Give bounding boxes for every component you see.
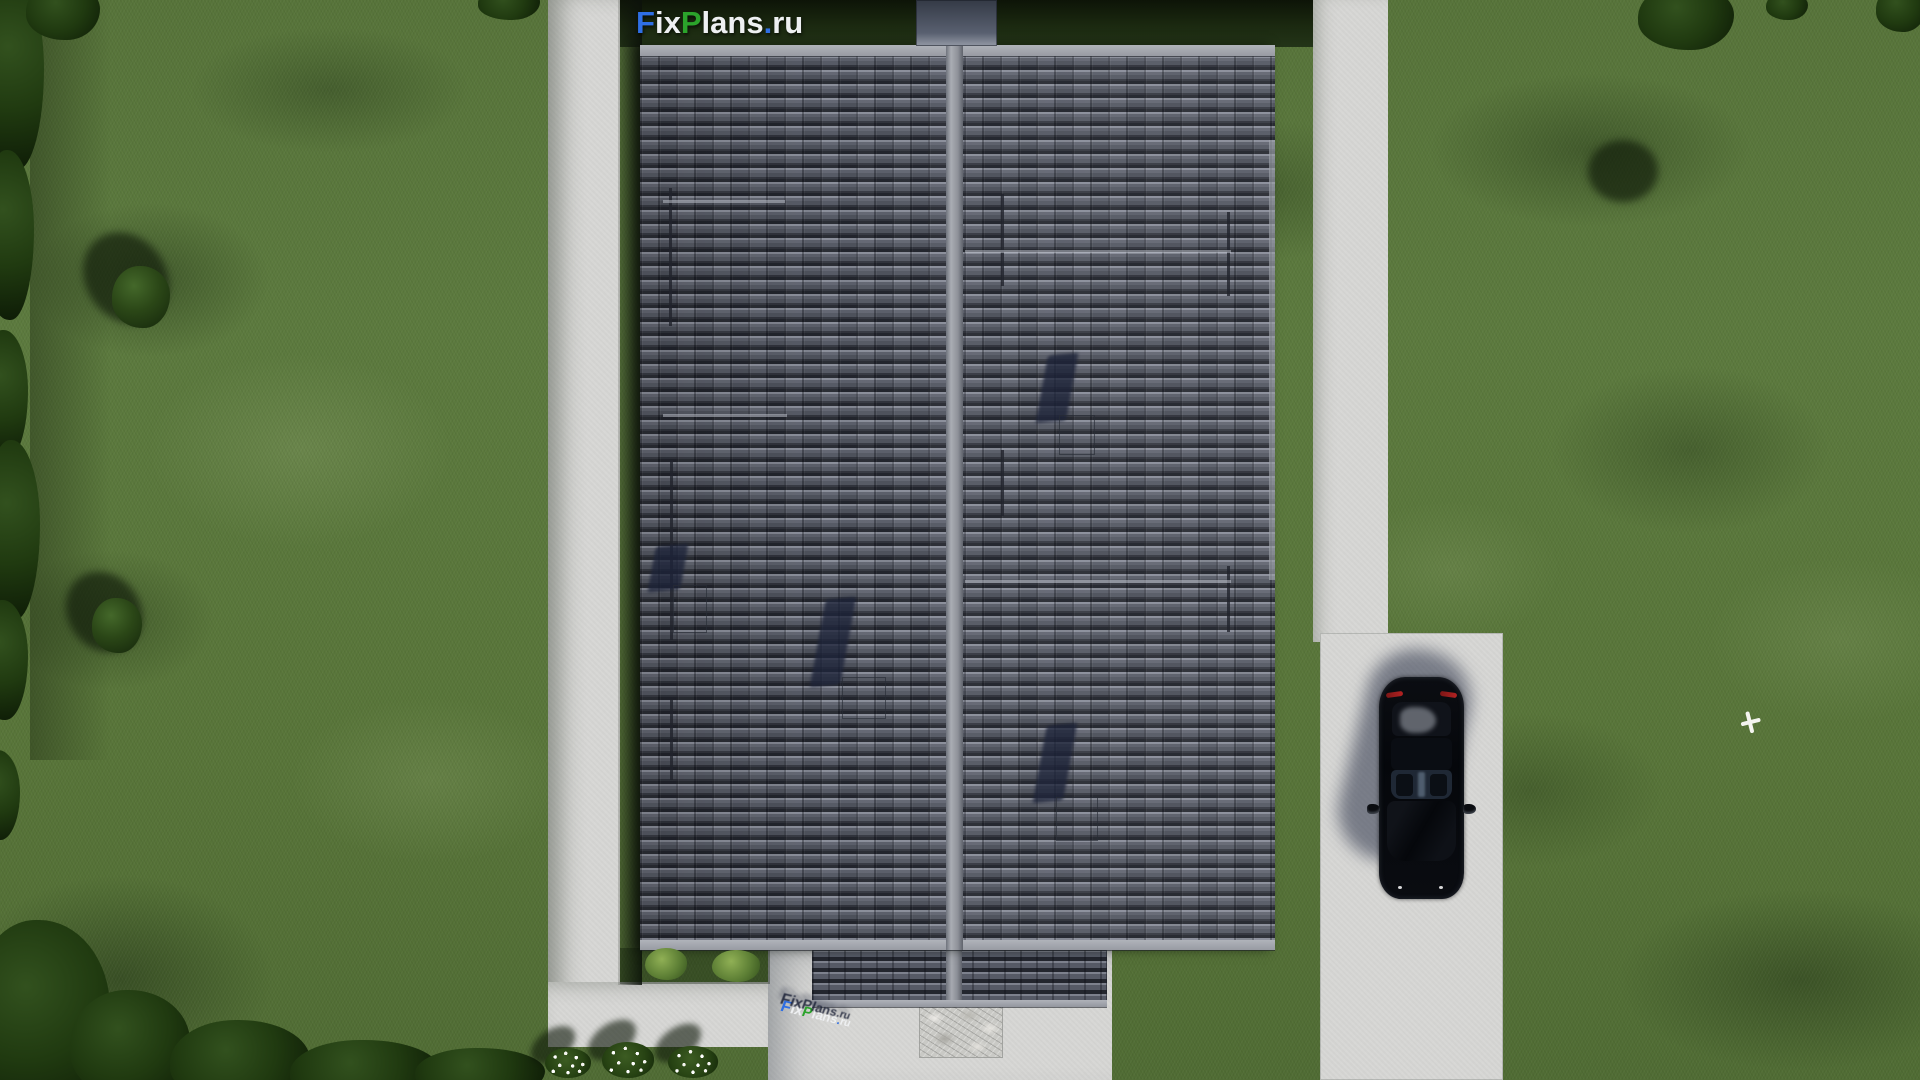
garage-ridge <box>946 950 962 1000</box>
right-path <box>1313 0 1388 642</box>
roof-rail <box>965 580 1231 583</box>
roof-pipe <box>1001 450 1004 516</box>
roof-pipe <box>1227 212 1230 296</box>
bush <box>645 948 687 980</box>
car-front-light <box>1398 886 1402 889</box>
car-seat <box>1396 774 1413 796</box>
logo-letter: u <box>784 5 803 40</box>
roof-pipe <box>1227 566 1230 632</box>
logo-letter: . <box>764 5 773 40</box>
chimney <box>916 0 997 46</box>
car-front-light <box>1439 886 1443 889</box>
garage-fascia <box>812 1000 1107 1007</box>
car-window-reflection <box>1400 707 1436 733</box>
car-mirror-left <box>1367 804 1380 814</box>
car-mirror-right <box>1463 804 1476 814</box>
bush <box>712 950 760 982</box>
logo-letter: l <box>702 5 711 40</box>
roof-pipe <box>669 188 672 326</box>
car-windshield <box>1391 770 1452 799</box>
house-left-shadow <box>618 0 642 985</box>
tree-shadow <box>1588 140 1658 202</box>
roof-rail <box>663 414 787 417</box>
roof-pipe <box>670 700 673 780</box>
logo-letter: i <box>655 5 664 40</box>
logo-letter: s <box>746 5 763 40</box>
tree <box>112 266 170 328</box>
flower-bush <box>668 1046 718 1078</box>
car-taillight-left <box>1386 691 1404 698</box>
car-taillight-right <box>1440 691 1458 698</box>
tree <box>92 598 142 653</box>
flower-bush <box>545 1048 591 1078</box>
garage-roof <box>812 950 1107 1007</box>
logo-letter: n <box>727 5 746 40</box>
roof-right-edge <box>1269 140 1275 580</box>
roof-rail <box>663 200 785 203</box>
logo-letter: P <box>681 5 702 40</box>
logo-letter: a <box>710 5 727 40</box>
roof-pipe <box>1001 194 1004 286</box>
car-hood <box>1387 801 1456 861</box>
house-roof <box>640 45 1275 950</box>
logo-letter: r <box>772 5 784 40</box>
roof-vent <box>1060 416 1094 454</box>
roof-vent <box>843 678 885 718</box>
car-seat <box>1430 774 1447 796</box>
logo-letter: F <box>636 5 655 40</box>
roof-ridge <box>946 45 963 950</box>
roof-vent <box>1057 798 1097 840</box>
watermark-logo: FixPlans.ru <box>636 5 803 41</box>
flower-bush <box>602 1042 654 1078</box>
roof-rail <box>965 250 1231 253</box>
roof-vent <box>674 586 706 632</box>
car <box>1379 677 1464 899</box>
aerial-render-scene: FixPlans.ru FixPlans.ru <box>0 0 1920 1080</box>
car-roof <box>1391 738 1452 770</box>
logo-letter: x <box>664 5 681 40</box>
left-path <box>548 0 620 1047</box>
car-rear-window <box>1392 702 1451 736</box>
car-console <box>1418 772 1425 797</box>
